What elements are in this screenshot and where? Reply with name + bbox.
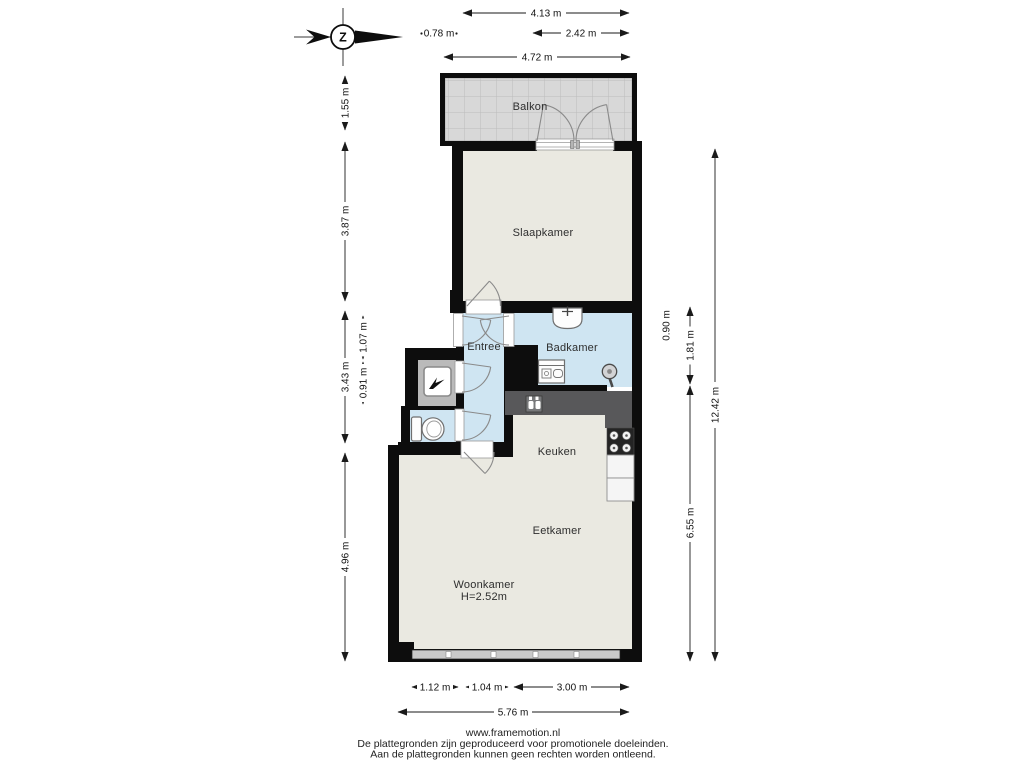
compass: Z [294, 8, 403, 66]
washbasin-icon [553, 307, 582, 329]
entree-floor [463, 313, 505, 444]
dim-left-496: 4.96 m [340, 453, 352, 661]
dim-top-472: 4.72 m [444, 52, 630, 64]
dim-left-155: 1.55 m [340, 76, 352, 130]
svg-text:3.00 m: 3.00 m [557, 683, 588, 694]
svg-text:1.12 m: 1.12 m [420, 683, 451, 694]
kitchen-sink-icon [526, 396, 542, 412]
svg-text:4.96 m: 4.96 m [341, 542, 352, 573]
svg-text:0.91 m: 0.91 m [359, 368, 370, 399]
kitchen-counter-corner [605, 391, 632, 428]
svg-text:4.13 m: 4.13 m [531, 9, 562, 20]
floorplan-page: Z [0, 0, 1024, 768]
boiler-icon [424, 367, 451, 396]
svg-text:5.76 m: 5.76 m [498, 708, 529, 719]
svg-text:2.42 m: 2.42 m [566, 29, 597, 40]
svg-text:1.81 m: 1.81 m [686, 330, 697, 361]
dim-left-343: 3.43 m [340, 311, 352, 443]
wall-cv-toilet-divider [405, 406, 456, 410]
svg-text:12.42 m: 12.42 m [711, 387, 722, 423]
woonkamer-floor [399, 445, 632, 650]
woonkamer-height-label: H=2.52m [461, 591, 507, 603]
wall-balkon-left [440, 73, 445, 146]
dim-bottom-104: 1.04 m [466, 682, 508, 694]
svg-text:3.87 m: 3.87 m [341, 206, 352, 237]
compass-pointer-icon [355, 31, 403, 44]
wall-balkon-top [440, 73, 637, 78]
dim-right-655: 6.55 m [685, 386, 697, 661]
dim-left-107: 1.07 m [358, 316, 370, 359]
svg-text:1.04 m: 1.04 m [472, 683, 503, 694]
doorframe-badkamer [504, 314, 515, 347]
wall-entree-badkamer-chunk [504, 345, 538, 391]
dim-right-090: 0.90 m [661, 307, 673, 345]
svg-text:0.78 m: 0.78 m [424, 29, 455, 40]
wall-entree-bottom [492, 442, 513, 457]
wall-slaapkamer-left [452, 141, 463, 313]
dim-top-078: 0.78 m [420, 29, 457, 40]
dim-bottom-576: 5.76 m [398, 707, 629, 719]
slaapkamer-floor [462, 150, 632, 302]
dim-top-242: 2.42 m [533, 28, 629, 40]
keuken-label: Keuken [538, 446, 577, 458]
wall-right-outer [632, 141, 642, 662]
dim-left-091: 0.91 m [358, 362, 370, 404]
doorframe-toilet [455, 409, 464, 441]
svg-text:0.90 m: 0.90 m [662, 310, 673, 341]
doorframe-woonkamer [461, 441, 493, 458]
svg-text:1.55 m: 1.55 m [341, 88, 352, 119]
dimensions-right: 0.90 m 1.81 m 6.55 m 12.42 m [661, 149, 722, 661]
balkon-label: Balkon [513, 101, 548, 113]
footer: www.framemotion.nl De plattegronden zijn… [357, 727, 668, 761]
wall-badkamer-keuken [504, 385, 607, 391]
kitchen-cabinet-upper [607, 455, 634, 478]
entree-label: Entree [467, 341, 501, 353]
badkamer-label: Badkamer [546, 342, 598, 354]
toilet-icon [412, 417, 445, 441]
wall-bottom-left-corner [388, 642, 414, 662]
kitchen-cabinet-lower [607, 478, 634, 501]
svg-text:6.55 m: 6.55 m [686, 508, 697, 539]
eetkamer-label: Eetkamer [533, 525, 582, 537]
wall-entree-left-a [456, 346, 464, 363]
doorframe-front-door [454, 314, 464, 347]
svg-text:1.07 m: 1.07 m [359, 322, 370, 353]
woonkamer-label: Woonkamer [454, 579, 515, 591]
svg-text:3.43 m: 3.43 m [341, 362, 352, 393]
french-door-balkon [536, 139, 614, 150]
dim-bottom-300: 3.00 m [514, 682, 629, 694]
kitchen-counter-top [505, 391, 605, 415]
floorplan-svg: Z [0, 0, 1024, 768]
compass-letter: Z [339, 31, 347, 45]
dim-left-387: 3.87 m [340, 142, 352, 301]
wall-slaapkamer-bottom-left [452, 301, 467, 313]
doorframe-cv-closet [455, 361, 464, 393]
washing-machine-icon [539, 360, 565, 383]
stove-icon [607, 428, 634, 455]
wall-woonkamer-left [388, 445, 399, 662]
doorframe-slaapkamer [466, 300, 501, 314]
dimensions-left: 1.55 m 3.87 m 3.43 m 1.07 m 0.91 m 4.96 … [340, 76, 370, 661]
dimensions-bottom: 1.12 m 1.04 m 3.00 m 5.76 m [398, 682, 629, 719]
wall-toilet-bottom [398, 442, 462, 455]
window-bottom [412, 650, 620, 659]
slaapkamer-label: Slaapkamer [513, 227, 574, 239]
footer-disclaimer-line2: Aan de plattegronden kunnen geen rechten… [370, 749, 655, 761]
wall-slaapkamer-top-left [452, 141, 537, 151]
wall-cv-closet-left [405, 348, 418, 408]
wall-entree-left-b [456, 391, 464, 411]
wall-balkon-right [632, 73, 637, 146]
dim-top-413: 4.13 m [463, 8, 629, 20]
dim-bottom-112: 1.12 m [412, 682, 458, 694]
dim-right-1242: 12.42 m [710, 149, 722, 661]
svg-text:4.72 m: 4.72 m [522, 53, 553, 64]
dim-right-181: 1.81 m [685, 307, 697, 384]
dimensions-top: 4.13 m 0.78 m 2.42 m 4.72 m [420, 8, 630, 64]
